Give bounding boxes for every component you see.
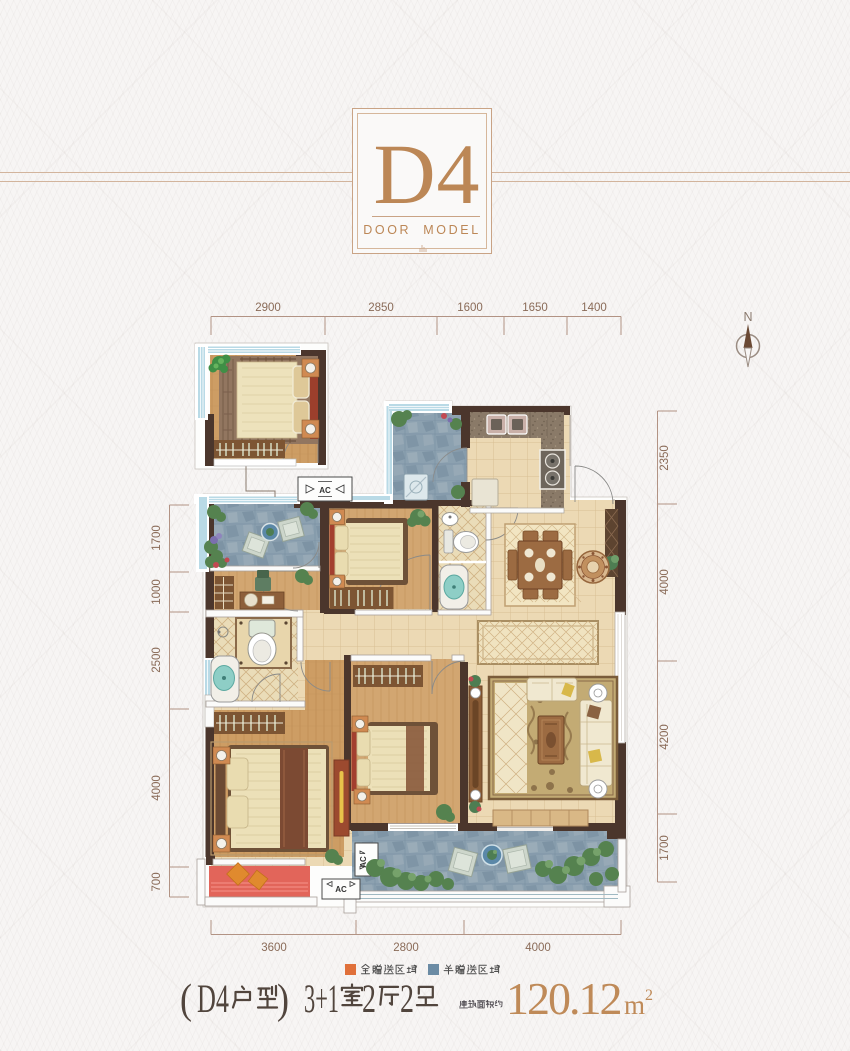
svg-text:2: 2 [362,976,376,1021]
svg-text:1650: 1650 [522,302,548,314]
svg-text:D4: D4 [197,976,229,1021]
svg-text:2850: 2850 [368,302,394,314]
svg-text:4000: 4000 [151,775,163,801]
svg-text:2: 2 [645,987,653,1004]
svg-text:1700: 1700 [151,525,163,551]
svg-text:): ) [277,977,289,1023]
svg-text:1000: 1000 [151,579,163,605]
svg-text:1600: 1600 [457,302,483,314]
svg-text:N: N [743,310,752,324]
svg-text:(: ( [180,977,192,1023]
svg-text:700: 700 [151,872,163,891]
svg-text:2800: 2800 [393,942,419,954]
svg-text:4000: 4000 [525,942,551,954]
svg-text:2900: 2900 [255,302,281,314]
svg-text:120.12: 120.12 [506,973,621,1024]
svg-text:1700: 1700 [659,835,671,861]
svg-text:2: 2 [400,976,414,1021]
svg-text:3+1: 3+1 [304,976,339,1021]
svg-text:AC: AC [335,885,347,894]
svg-text:1400: 1400 [581,302,607,314]
svg-text:4200: 4200 [659,724,671,750]
svg-text:3600: 3600 [261,942,287,954]
svg-text:m: m [624,990,645,1020]
svg-text:2350: 2350 [659,445,671,471]
svg-text:2500: 2500 [151,647,163,673]
svg-text:AC: AC [319,486,331,495]
svg-text:4000: 4000 [659,569,671,595]
